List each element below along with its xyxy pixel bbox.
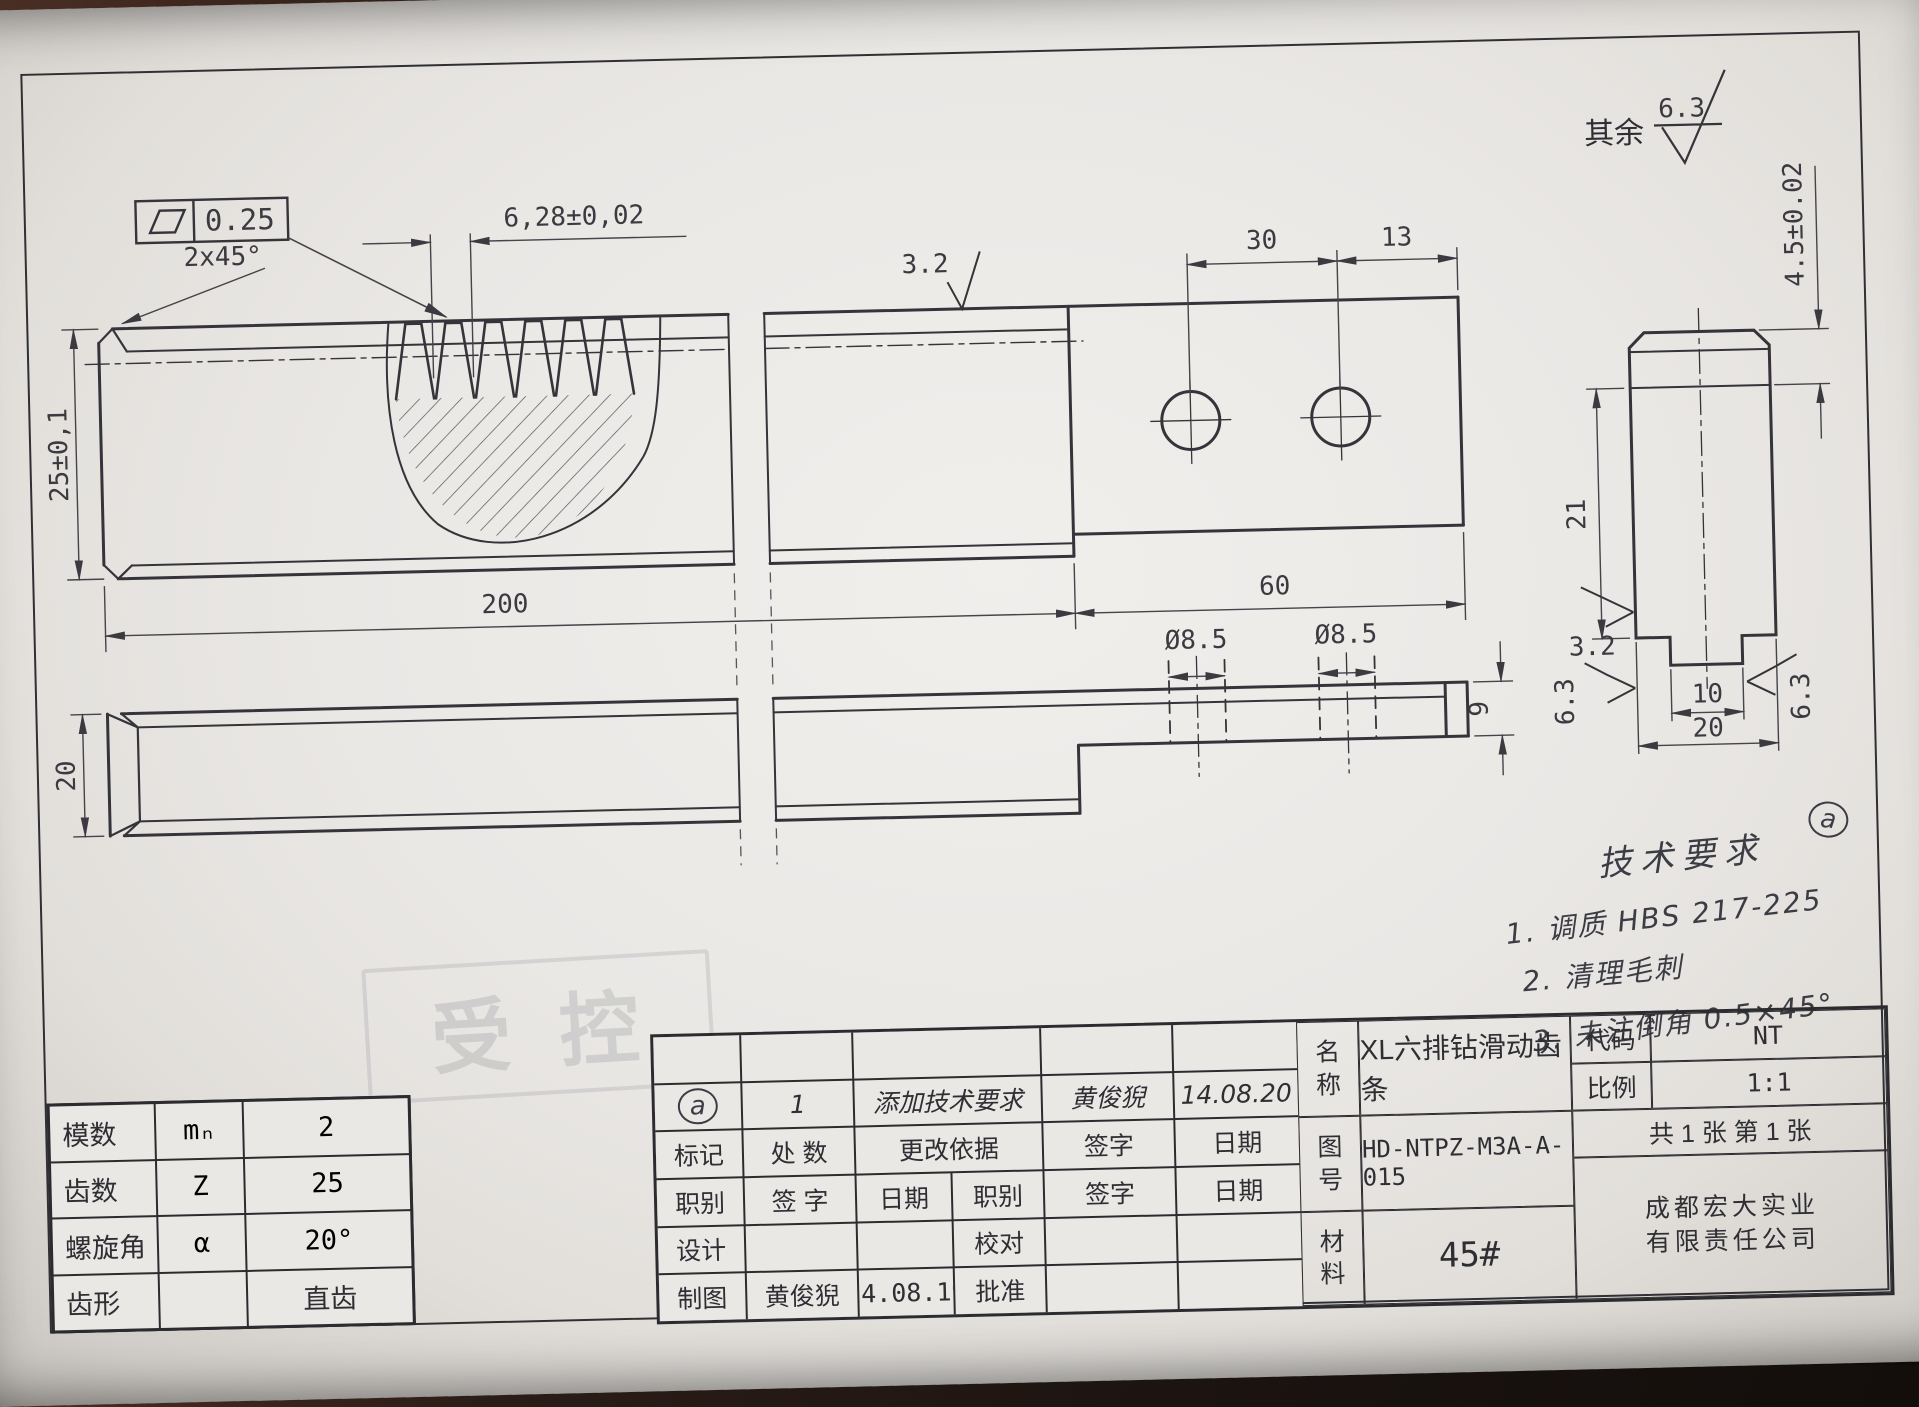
dim-line-30 bbox=[1187, 261, 1337, 265]
material-value: 45# bbox=[1362, 1206, 1576, 1305]
gear-row-value: 直齿 bbox=[248, 1268, 413, 1326]
gear-row-name: 齿形 bbox=[54, 1274, 159, 1331]
roughness-icon-top bbox=[947, 251, 981, 309]
rack-teeth bbox=[394, 319, 634, 400]
empty-cell bbox=[1046, 1216, 1177, 1265]
finish-bottom-text: 3.2 bbox=[1568, 632, 1616, 663]
tab-right-edge bbox=[1458, 297, 1463, 525]
dim-dia-right bbox=[1319, 672, 1375, 673]
dim-line-pitch-left bbox=[362, 242, 430, 244]
dim-10-text: 10 bbox=[1691, 679, 1723, 710]
finish-top-text: 3.2 bbox=[901, 249, 949, 280]
header-mark: 标记 bbox=[655, 1131, 742, 1179]
check-label: 校对 bbox=[954, 1219, 1045, 1267]
gear-parameter-table: 模数 mₙ 2 齿数 Z 25 螺旋角 α 20° 齿形 直齿 bbox=[47, 1095, 416, 1334]
gear-row-symbol: Z bbox=[157, 1159, 244, 1216]
bv-band-lines bbox=[138, 697, 1448, 822]
dim-45-text: 4.5±0.02 bbox=[1778, 161, 1811, 287]
bv-top-edge bbox=[121, 682, 1467, 714]
revision-date: 14.08.20 bbox=[1174, 1070, 1298, 1119]
flatness-value: 0.25 bbox=[205, 202, 276, 238]
revision-marker-circle: a bbox=[677, 1088, 718, 1125]
tab-boundary bbox=[1068, 306, 1074, 556]
revision-reason: 添加技术要求 bbox=[854, 1076, 1041, 1126]
company-name: 成都宏大实业 有限责任公司 bbox=[1573, 1150, 1891, 1299]
gear-row-symbol: α bbox=[158, 1215, 245, 1272]
material-label: 材料 bbox=[1300, 1211, 1364, 1306]
sheet-count: 共 1 张 第 1 张 bbox=[1572, 1103, 1888, 1157]
gear-row-symbol: mₙ bbox=[156, 1102, 243, 1159]
drawing-sheet-paper: 6,28±0,02 0.25 2x45° 25±0,1 3.2 30 13 20… bbox=[0, 0, 1919, 1407]
design-label: 设计 bbox=[658, 1226, 745, 1274]
dim-line-60 bbox=[1075, 604, 1465, 613]
gear-row-name: 模数 bbox=[50, 1104, 155, 1161]
roughness-icon-bottom bbox=[1581, 586, 1634, 627]
default-finish-value: 6.3 bbox=[1658, 93, 1706, 124]
bv-left-edge bbox=[107, 714, 110, 836]
title-block: a 1 添加技术要求 黄俊猊 14.08.20 标记 处 数 更改依据 签字 日… bbox=[650, 1005, 1894, 1324]
revision-sign: 黄俊猊 bbox=[1042, 1073, 1173, 1122]
dim-45-arrows bbox=[1820, 384, 1821, 439]
gear-row-name: 螺旋角 bbox=[52, 1217, 157, 1274]
header-date: 日期 bbox=[1175, 1117, 1299, 1166]
draw-date: 14.08.19 bbox=[859, 1269, 954, 1317]
dim-line-200 bbox=[106, 613, 1076, 636]
rack-top-edge bbox=[112, 297, 1458, 329]
empty-cell bbox=[853, 1028, 1040, 1078]
empty-cell bbox=[1047, 1263, 1178, 1312]
dim-9-arrows bbox=[1502, 735, 1503, 775]
dim-line-13 bbox=[1337, 258, 1457, 261]
end-view-texts: 21 4.5±0.02 10 20 3.2 6.3 6.3 bbox=[1538, 161, 1822, 747]
rack-bottom-edge bbox=[118, 556, 1074, 579]
header-sign2: 签 字 bbox=[745, 1176, 856, 1224]
roughness-icon-left bbox=[1585, 662, 1636, 703]
dim-30-text: 30 bbox=[1246, 225, 1278, 256]
break-lines bbox=[728, 314, 770, 565]
ext-line bbox=[1586, 388, 1630, 639]
ext-line bbox=[1187, 247, 1460, 398]
empty-cell bbox=[1041, 1025, 1172, 1074]
dim-60-text: 60 bbox=[1259, 571, 1291, 602]
code-value: NT bbox=[1650, 1008, 1886, 1062]
main-view bbox=[84, 297, 1464, 579]
ev-centerline bbox=[1698, 309, 1707, 689]
scale-value: 1:1 bbox=[1651, 1056, 1887, 1109]
flatness-icon bbox=[150, 210, 186, 233]
dim-line-pitch-right bbox=[470, 236, 686, 241]
revision-count: 1 bbox=[742, 1080, 853, 1128]
dim-line-20 bbox=[82, 715, 85, 837]
dim-13-text: 13 bbox=[1381, 222, 1413, 253]
tab-bottom-edge bbox=[1073, 525, 1463, 534]
bv-step bbox=[1078, 736, 1469, 813]
draw-label: 制图 bbox=[659, 1274, 746, 1322]
ev-root-line bbox=[1630, 385, 1770, 388]
drawing-no-label: 图号 bbox=[1298, 1116, 1362, 1212]
dim-dia-right-text: Ø8.5 bbox=[1314, 619, 1377, 650]
bv-bottom-edge bbox=[124, 813, 1080, 836]
revision-table: a 1 添加技术要求 黄俊猊 14.08.20 标记 处 数 更改依据 签字 日… bbox=[653, 1022, 1303, 1321]
header-count: 处 数 bbox=[743, 1128, 854, 1176]
dim-20ev-text: 20 bbox=[1692, 713, 1724, 744]
drawing-no-value: HD-NTPZ-M3A-A-015 bbox=[1360, 1111, 1574, 1211]
finish-left-text: 6.3 bbox=[1550, 678, 1581, 726]
top-band-line bbox=[127, 329, 1069, 351]
gear-row-value: 20° bbox=[246, 1211, 411, 1269]
dim-21-text: 21 bbox=[1562, 498, 1593, 530]
header-date3: 日期 bbox=[1176, 1165, 1300, 1214]
gear-row-symbol bbox=[160, 1271, 247, 1328]
bottom-view bbox=[107, 650, 1470, 836]
header-basis: 更改依据 bbox=[855, 1124, 1042, 1174]
dim-dia-left bbox=[1169, 676, 1225, 677]
default-finish-note: 其余 6.3 bbox=[1583, 70, 1727, 165]
gear-row-value: 2 bbox=[244, 1098, 409, 1156]
scale-label: 比例 bbox=[1571, 1062, 1652, 1111]
bv-hole-centerlines bbox=[1196, 653, 1349, 777]
flatness-leader bbox=[288, 234, 446, 321]
draw-name: 黄俊猊 bbox=[747, 1271, 858, 1319]
dim-pitch-text: 6,28±0,02 bbox=[503, 200, 645, 233]
dim-45-leader bbox=[1815, 166, 1818, 274]
dim-45-arrows bbox=[1818, 274, 1819, 329]
dim-20-text: 20 bbox=[52, 760, 83, 792]
dim-9-arrows bbox=[1500, 641, 1501, 681]
part-info-table: 名称 XL六排钻滑动齿条 代码 NT 比例 1:1 图号 HD-NTPZ-M3A… bbox=[1296, 1008, 1892, 1306]
header-date2: 日期 bbox=[857, 1173, 952, 1221]
dim-200-text: 200 bbox=[481, 589, 529, 620]
end-view bbox=[1628, 307, 1777, 690]
bv-break-lines bbox=[737, 698, 776, 821]
header-sign: 签字 bbox=[1043, 1120, 1174, 1169]
dim-9-text: 9 bbox=[1465, 701, 1495, 717]
finish-right-text: 6.3 bbox=[1786, 672, 1817, 720]
rack-left-edge bbox=[99, 343, 104, 565]
dim-chamfer-text: 2x45° bbox=[183, 241, 262, 273]
revision-marker: a bbox=[654, 1083, 741, 1131]
bottom-band-line bbox=[132, 543, 1074, 565]
header-role2: 职别 bbox=[952, 1171, 1043, 1219]
empty-cell bbox=[1178, 1213, 1302, 1262]
header-sign3: 签字 bbox=[1044, 1168, 1175, 1217]
dim-line-21 bbox=[1596, 389, 1602, 639]
company-line2: 有限责任公司 bbox=[1645, 1223, 1820, 1261]
pitch-centerline bbox=[85, 341, 1083, 365]
dim-dia-left-text: Ø8.5 bbox=[1164, 625, 1227, 656]
ev-outline bbox=[1629, 330, 1777, 666]
chamfer-leader bbox=[121, 268, 266, 323]
default-finish-prefix: 其余 bbox=[1584, 117, 1645, 151]
empty-cell bbox=[858, 1221, 953, 1269]
gear-row-value: 25 bbox=[245, 1155, 410, 1213]
empty-cell bbox=[746, 1223, 857, 1271]
part-name: XL六排钻滑动齿条 bbox=[1358, 1016, 1572, 1116]
bv-chamfer bbox=[107, 713, 140, 836]
drawing-frame: 6,28±0,02 0.25 2x45° 25±0,1 3.2 30 13 20… bbox=[20, 31, 1889, 1334]
header-role: 职别 bbox=[657, 1178, 744, 1226]
dim-height-text: 25±0,1 bbox=[43, 408, 75, 503]
empty-cell bbox=[1173, 1022, 1297, 1071]
empty-cell bbox=[741, 1033, 852, 1081]
name-label: 名称 bbox=[1296, 1021, 1360, 1117]
gear-row-name: 齿数 bbox=[51, 1161, 156, 1218]
approve-label: 批准 bbox=[955, 1266, 1046, 1314]
empty-cell bbox=[1179, 1260, 1303, 1309]
code-label: 代码 bbox=[1570, 1014, 1651, 1064]
empty-cell bbox=[653, 1035, 740, 1083]
company-line1: 成都宏大实业 bbox=[1645, 1189, 1820, 1227]
